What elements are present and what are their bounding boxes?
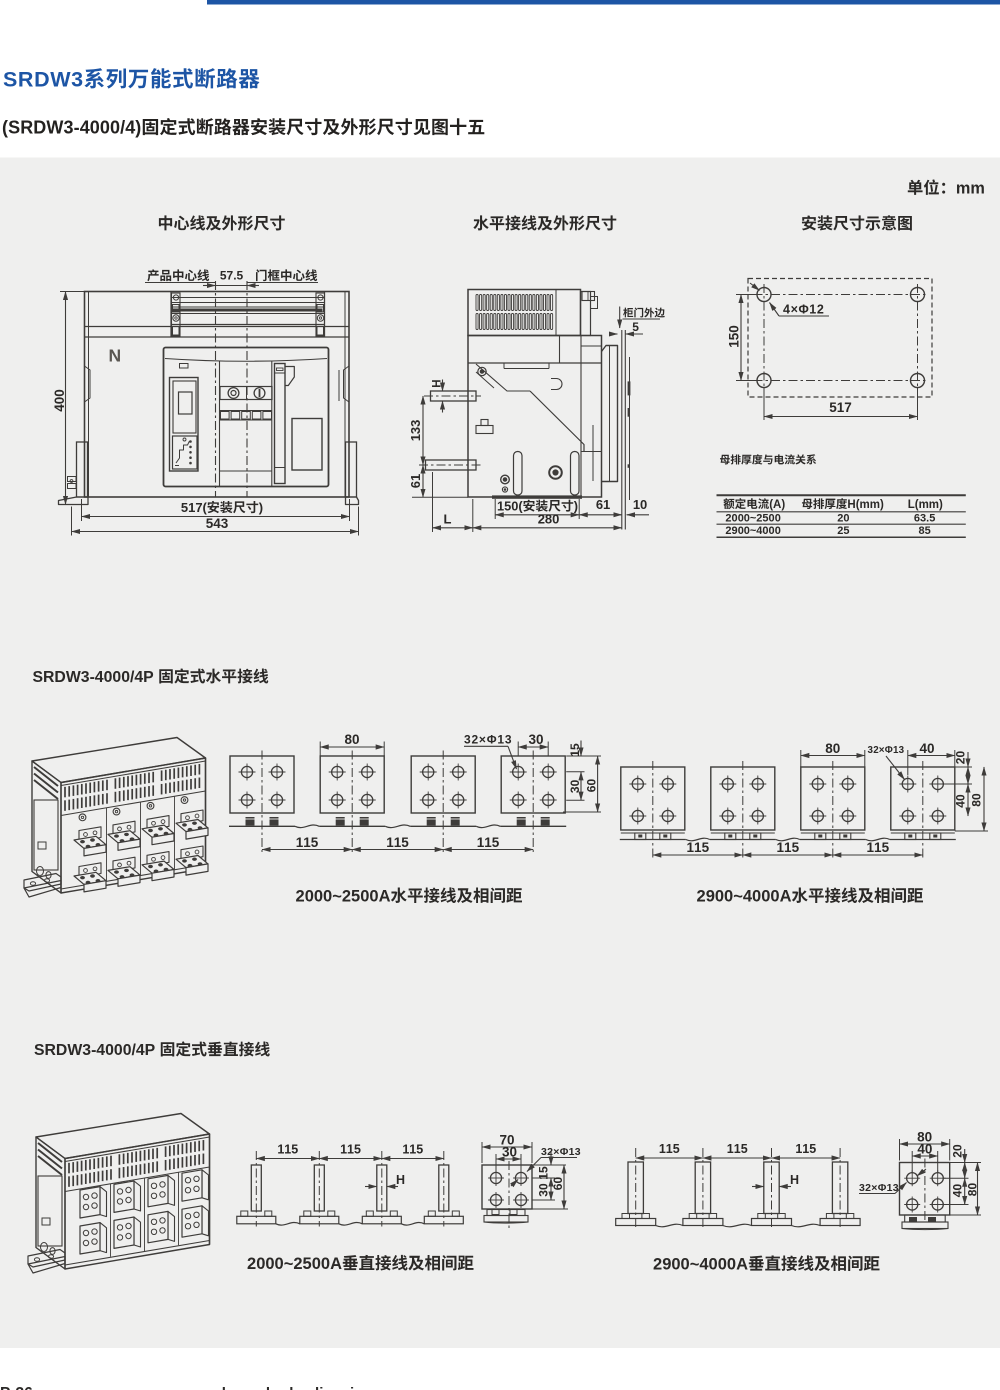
svg-text:20: 20 bbox=[837, 513, 849, 525]
svg-text:80: 80 bbox=[966, 1183, 980, 1197]
svg-text:60: 60 bbox=[585, 779, 599, 793]
svg-text:H: H bbox=[396, 1173, 405, 1187]
svg-text:150(: 150( bbox=[497, 499, 523, 514]
svg-text:85: 85 bbox=[919, 525, 931, 537]
svg-text:aoua shang bode dianqi: aoua shang bode dianqi bbox=[170, 1385, 354, 1390]
svg-text:115: 115 bbox=[402, 1143, 423, 1157]
svg-text:2900~4000A: 2900~4000A bbox=[697, 888, 792, 906]
svg-text:(A): (A) bbox=[769, 499, 785, 511]
svg-text:517(: 517( bbox=[181, 500, 208, 515]
svg-text:(SRDW3-4000/4): (SRDW3-4000/4) bbox=[2, 118, 141, 138]
svg-text:32×Φ13: 32×Φ13 bbox=[464, 733, 512, 747]
svg-text:32×Φ13: 32×Φ13 bbox=[541, 1146, 581, 1158]
svg-text:40: 40 bbox=[951, 1184, 965, 1198]
svg-text:P-36: P-36 bbox=[0, 1385, 33, 1390]
svg-text:H(mm): H(mm) bbox=[847, 499, 884, 511]
svg-text:32×Φ13: 32×Φ13 bbox=[859, 1182, 899, 1194]
svg-text:150: 150 bbox=[727, 325, 742, 348]
svg-text:2000~2500: 2000~2500 bbox=[725, 513, 780, 525]
svg-text:H: H bbox=[790, 1173, 799, 1187]
svg-text:115: 115 bbox=[340, 1143, 361, 1157]
svg-text:2000~2500A: 2000~2500A bbox=[296, 888, 391, 906]
svg-text:20: 20 bbox=[954, 751, 968, 765]
svg-text:60: 60 bbox=[551, 1177, 565, 1191]
svg-text:L(mm): L(mm) bbox=[908, 499, 943, 511]
svg-text:543: 543 bbox=[206, 516, 229, 531]
svg-text:30: 30 bbox=[502, 1145, 517, 1160]
svg-text:20: 20 bbox=[951, 1144, 965, 1158]
svg-text:80: 80 bbox=[970, 793, 984, 807]
svg-text:30: 30 bbox=[568, 779, 582, 793]
svg-text:10: 10 bbox=[633, 497, 647, 512]
svg-text:40: 40 bbox=[917, 1142, 932, 1157]
svg-text:SRDW3-4000/4P: SRDW3-4000/4P bbox=[34, 1042, 160, 1059]
svg-text:40: 40 bbox=[954, 794, 968, 808]
svg-text:80: 80 bbox=[345, 732, 360, 747]
svg-text:57.5: 57.5 bbox=[220, 269, 244, 283]
svg-text:80: 80 bbox=[825, 741, 840, 756]
svg-text:N: N bbox=[109, 346, 122, 366]
svg-text:5: 5 bbox=[632, 320, 639, 334]
svg-text:2000~2500A: 2000~2500A bbox=[247, 1255, 342, 1273]
svg-text:115: 115 bbox=[277, 1143, 298, 1157]
svg-text:SRDW3: SRDW3 bbox=[3, 68, 83, 92]
svg-text:61: 61 bbox=[596, 497, 610, 512]
svg-text:517: 517 bbox=[829, 400, 852, 415]
svg-text:30: 30 bbox=[529, 732, 544, 747]
svg-text:280: 280 bbox=[538, 512, 560, 527]
svg-text:2900~4000A: 2900~4000A bbox=[653, 1256, 748, 1274]
svg-text:115: 115 bbox=[687, 840, 710, 855]
svg-text:2900~4000: 2900~4000 bbox=[725, 525, 780, 537]
svg-text:H: H bbox=[432, 379, 444, 387]
svg-text:): ) bbox=[259, 500, 263, 515]
svg-text:25: 25 bbox=[837, 525, 849, 537]
svg-text:115: 115 bbox=[477, 835, 500, 850]
svg-text:115: 115 bbox=[296, 835, 319, 850]
svg-text:115: 115 bbox=[777, 840, 800, 855]
svg-text:61: 61 bbox=[408, 474, 423, 488]
svg-text:15: 15 bbox=[537, 1166, 551, 1180]
svg-text:115: 115 bbox=[659, 1142, 680, 1156]
svg-text:mm: mm bbox=[956, 180, 985, 198]
svg-text:400: 400 bbox=[52, 389, 67, 412]
svg-text:): ) bbox=[574, 499, 578, 514]
svg-text:115: 115 bbox=[386, 835, 409, 850]
svg-text:32×Φ13: 32×Φ13 bbox=[868, 745, 905, 756]
svg-text:15: 15 bbox=[568, 743, 582, 757]
svg-text:4×Φ12: 4×Φ12 bbox=[783, 303, 824, 317]
svg-text:30: 30 bbox=[537, 1183, 551, 1197]
svg-text:SRDW3-4000/4P: SRDW3-4000/4P bbox=[33, 669, 159, 686]
svg-text:115: 115 bbox=[727, 1142, 748, 1156]
svg-text:133: 133 bbox=[408, 420, 423, 442]
svg-text:40: 40 bbox=[920, 741, 935, 756]
svg-text:115: 115 bbox=[795, 1142, 816, 1156]
svg-text:115: 115 bbox=[867, 840, 890, 855]
svg-text:63.5: 63.5 bbox=[914, 513, 935, 525]
svg-text:L: L bbox=[444, 512, 452, 527]
